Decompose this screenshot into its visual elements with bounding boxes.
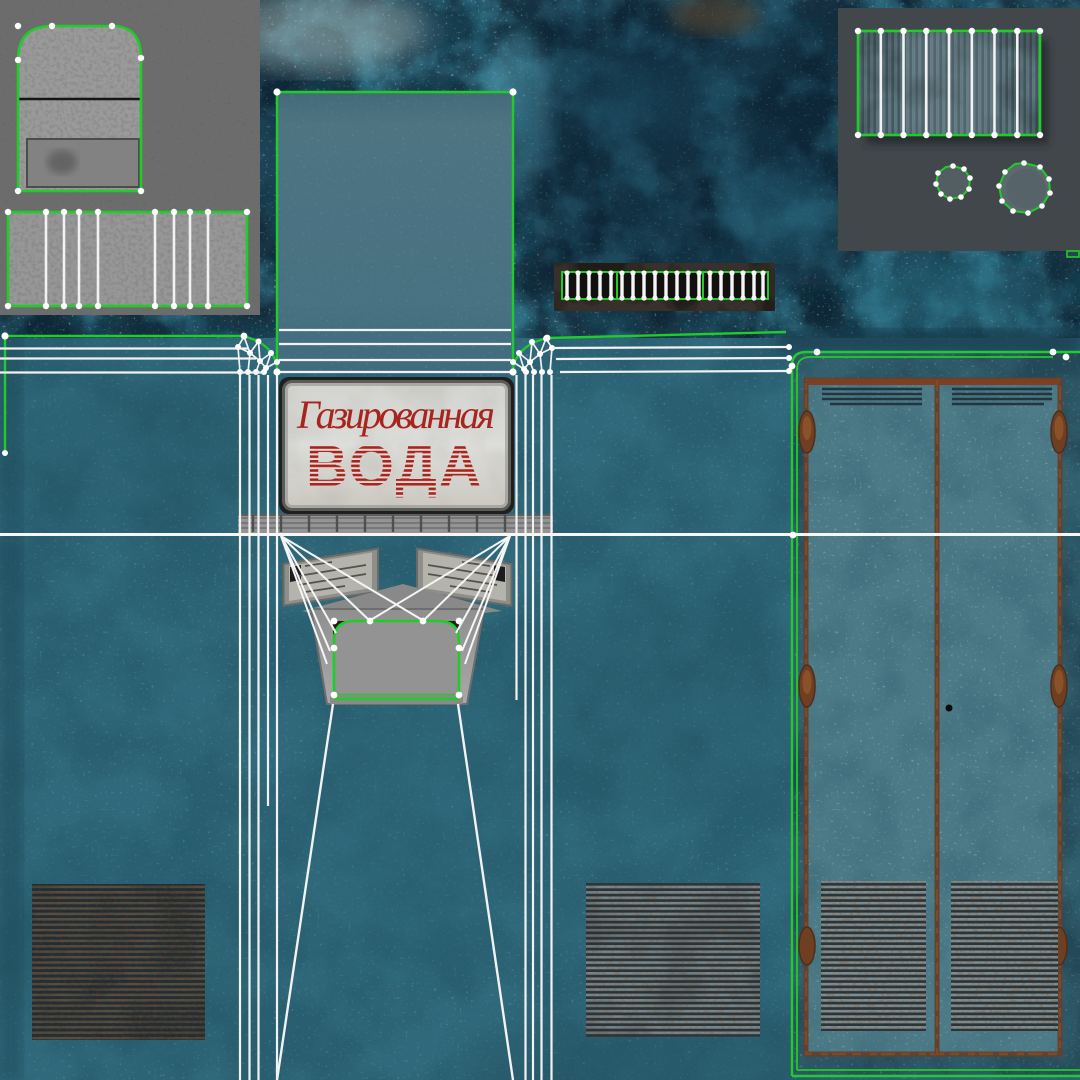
svg-text:ВОДА: ВОДА <box>306 434 486 499</box>
svg-text:Газированная: Газированная <box>296 392 495 437</box>
